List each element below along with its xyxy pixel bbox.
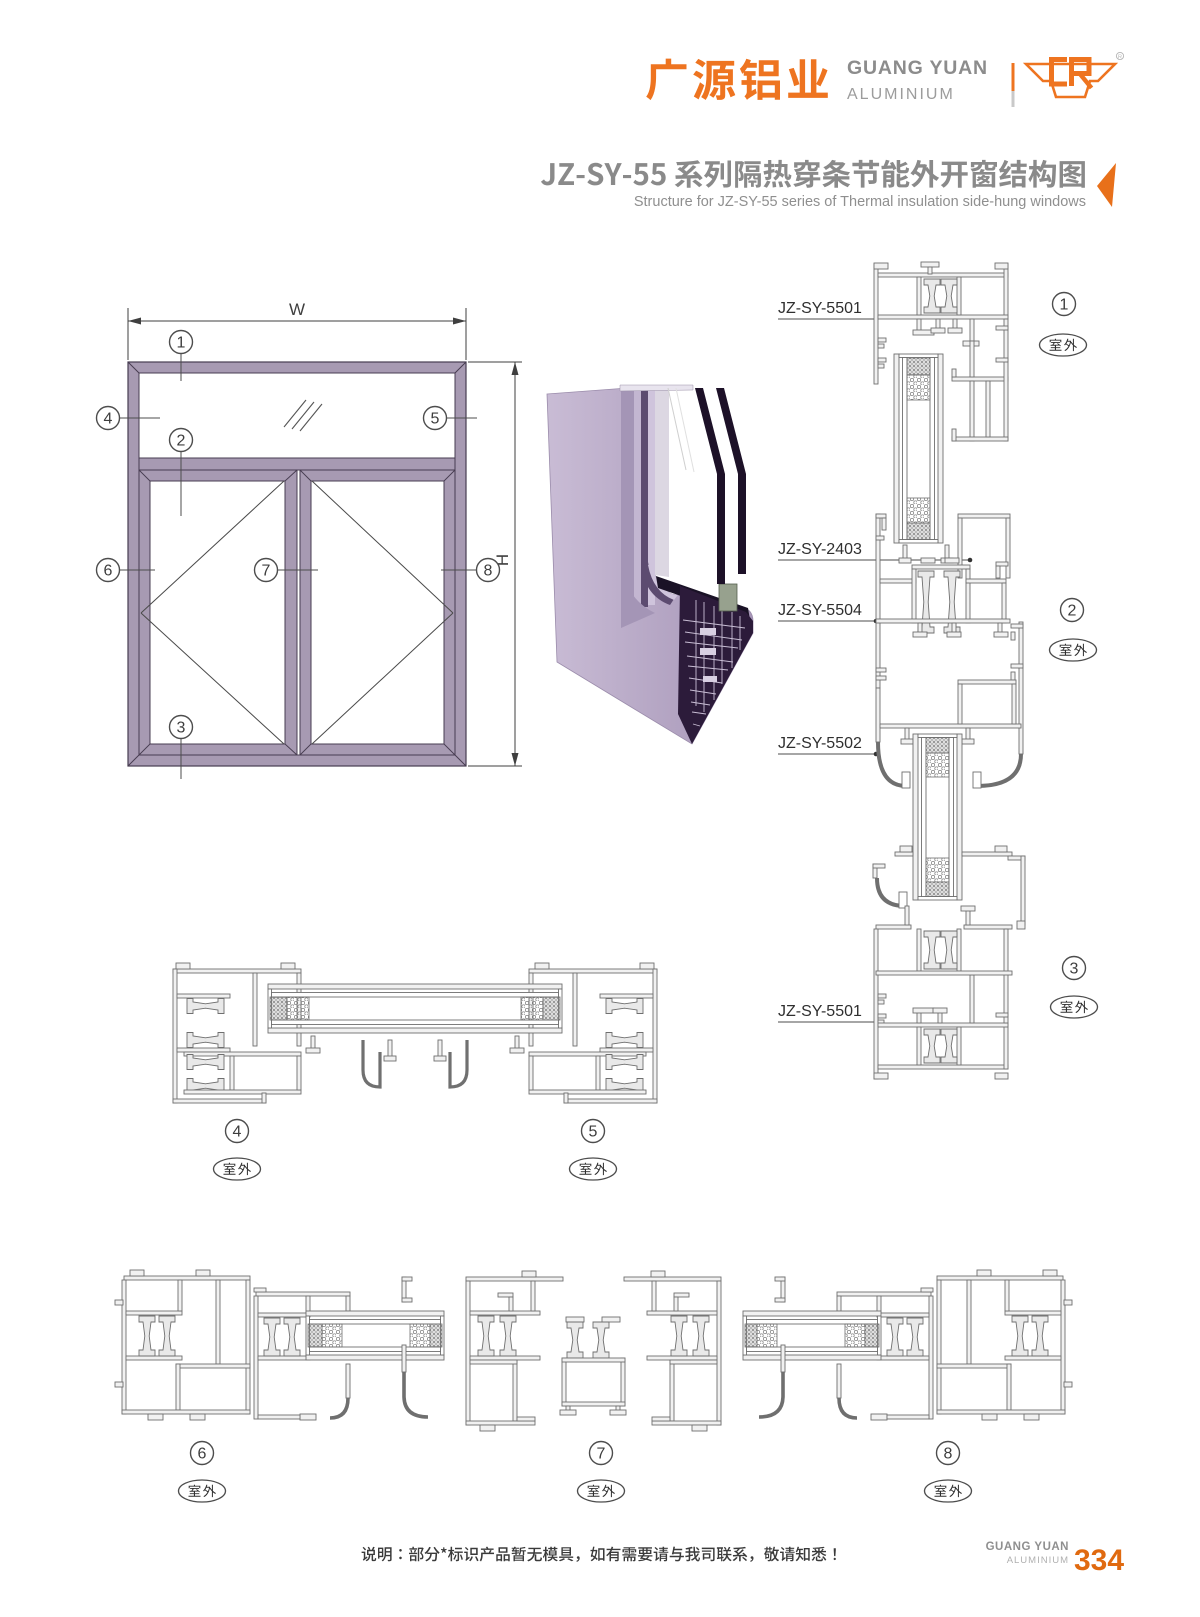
svg-text:GUANG YUAN: GUANG YUAN <box>847 57 988 79</box>
svg-text:2: 2 <box>1068 603 1077 620</box>
svg-text:7: 7 <box>262 563 271 580</box>
svg-text:R: R <box>1118 54 1122 60</box>
svg-text:JZ-SY-5501: JZ-SY-5501 <box>778 1003 862 1020</box>
svg-text:1: 1 <box>1060 297 1069 314</box>
svg-text:JZ-SY-5504: JZ-SY-5504 <box>778 602 862 619</box>
svg-text:4: 4 <box>104 411 113 428</box>
svg-text:2: 2 <box>177 433 186 450</box>
svg-text:1: 1 <box>177 335 186 352</box>
svg-text:Structure for JZ-SY-55 series: Structure for JZ-SY-55 series of Thermal… <box>634 194 1086 210</box>
svg-text:4: 4 <box>233 1124 242 1141</box>
svg-text:JZ-SY-2403: JZ-SY-2403 <box>778 541 862 558</box>
svg-text:JZ-SY-5501: JZ-SY-5501 <box>778 300 862 317</box>
svg-text:ALUMINIUM: ALUMINIUM <box>1007 1555 1069 1566</box>
svg-text:GUANG YUAN: GUANG YUAN <box>986 1541 1069 1553</box>
svg-text:W: W <box>289 300 305 319</box>
svg-text:5: 5 <box>589 1124 598 1141</box>
svg-text:334: 334 <box>1074 1544 1124 1577</box>
svg-text:3: 3 <box>1070 961 1079 978</box>
svg-text:5: 5 <box>431 411 440 428</box>
svg-text:3: 3 <box>177 720 186 737</box>
svg-text:ALUMINIUM: ALUMINIUM <box>847 86 955 103</box>
svg-text:8: 8 <box>944 1446 953 1463</box>
svg-text:6: 6 <box>104 563 113 580</box>
svg-text:8: 8 <box>484 563 493 580</box>
svg-text:JZ-SY-5502: JZ-SY-5502 <box>778 735 862 752</box>
svg-text:6: 6 <box>198 1446 207 1463</box>
svg-text:7: 7 <box>597 1446 606 1463</box>
